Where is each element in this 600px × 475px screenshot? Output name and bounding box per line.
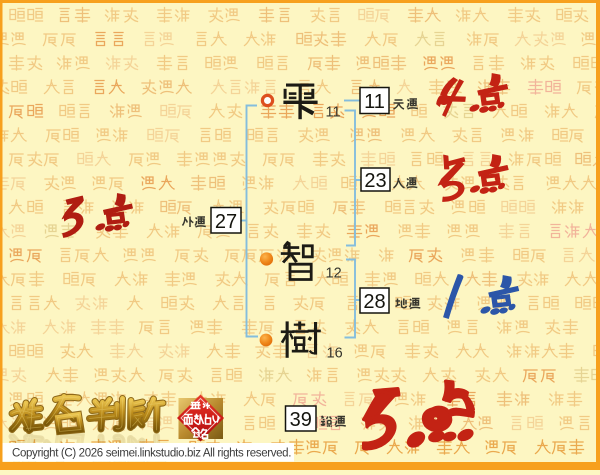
svg-text:28: 28	[363, 291, 385, 313]
svg-text:27: 27	[215, 211, 237, 233]
svg-text:11: 11	[326, 105, 341, 121]
svg-text:Copyright (C) 2026 seimei.link: Copyright (C) 2026 seimei.linkstudio.biz…	[12, 448, 291, 460]
svg-text:16: 16	[327, 346, 343, 362]
svg-text:11: 11	[364, 91, 385, 113]
svg-text:39: 39	[290, 409, 312, 431]
svg-text:23: 23	[364, 170, 386, 192]
svg-text:12: 12	[326, 266, 342, 282]
